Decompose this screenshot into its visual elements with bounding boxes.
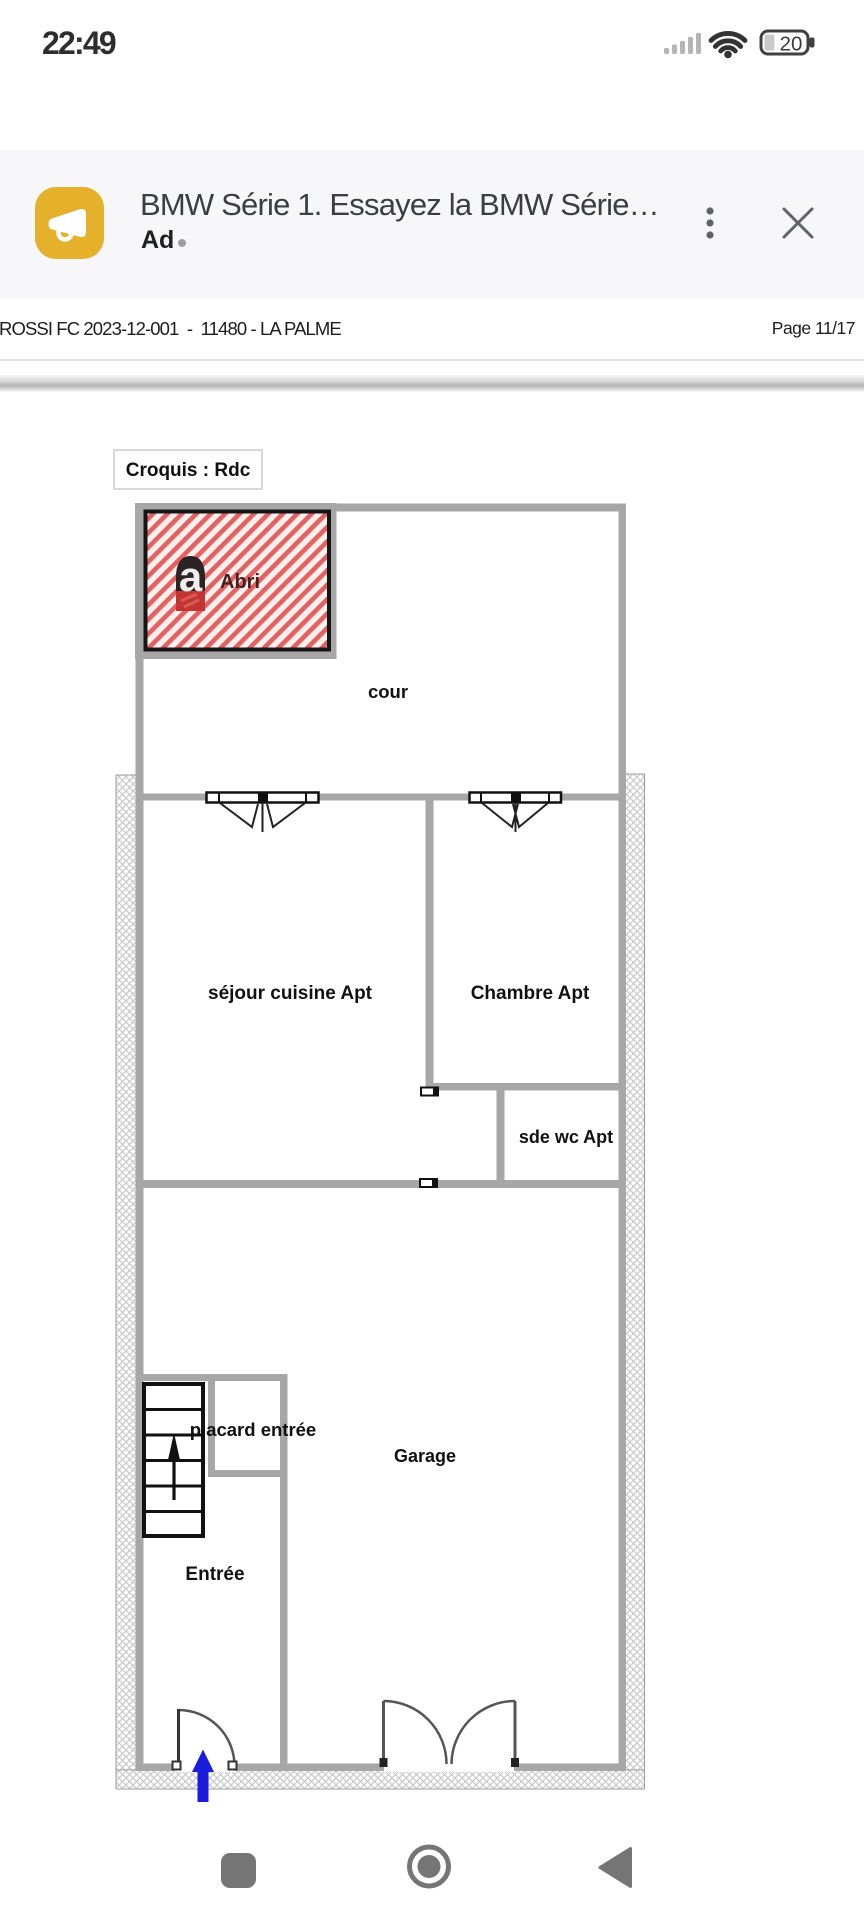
svg-text:a: a bbox=[179, 553, 203, 600]
svg-text:Chambre Apt: Chambre Apt bbox=[471, 983, 590, 1004]
svg-text:placard entrée: placard entrée bbox=[190, 1419, 316, 1440]
svg-text:cour: cour bbox=[368, 681, 408, 702]
svg-text:Entrée: Entrée bbox=[185, 1564, 244, 1585]
svg-text:Croquis : Rdc: Croquis : Rdc bbox=[126, 460, 251, 481]
svg-text:Garage: Garage bbox=[394, 1446, 456, 1466]
svg-text:sde wc Apt: sde wc Apt bbox=[519, 1127, 613, 1147]
svg-text:séjour cuisine Apt: séjour cuisine Apt bbox=[208, 983, 373, 1004]
svg-text:Abri: Abri bbox=[220, 571, 260, 593]
